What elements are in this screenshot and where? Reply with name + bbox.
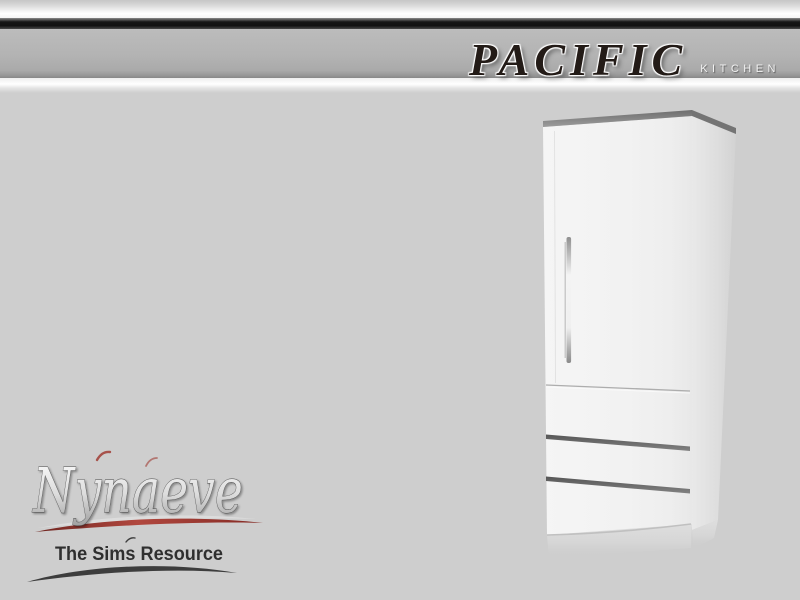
fridge-side-face	[692, 116, 736, 530]
header-black-bar	[0, 18, 800, 29]
collection-title: PACIFIC	[469, 38, 687, 82]
collection-subtitle: KITCHEN	[700, 63, 780, 75]
header-top-strip	[0, 0, 800, 18]
tsr-logo: Nynaeve The Sims Resource	[27, 452, 263, 582]
door-handle	[567, 237, 572, 363]
page-header: PACIFIC KITCHEN	[0, 0, 800, 93]
header-title-bar: PACIFIC KITCHEN	[0, 29, 800, 78]
logo-tagline: The Sims Resource	[55, 544, 223, 565]
logo-script-name: Nynaeve	[31, 454, 243, 527]
tagline-accent	[126, 538, 135, 542]
dark-swoosh-icon	[27, 566, 237, 582]
fridge-illustration	[543, 110, 736, 558]
